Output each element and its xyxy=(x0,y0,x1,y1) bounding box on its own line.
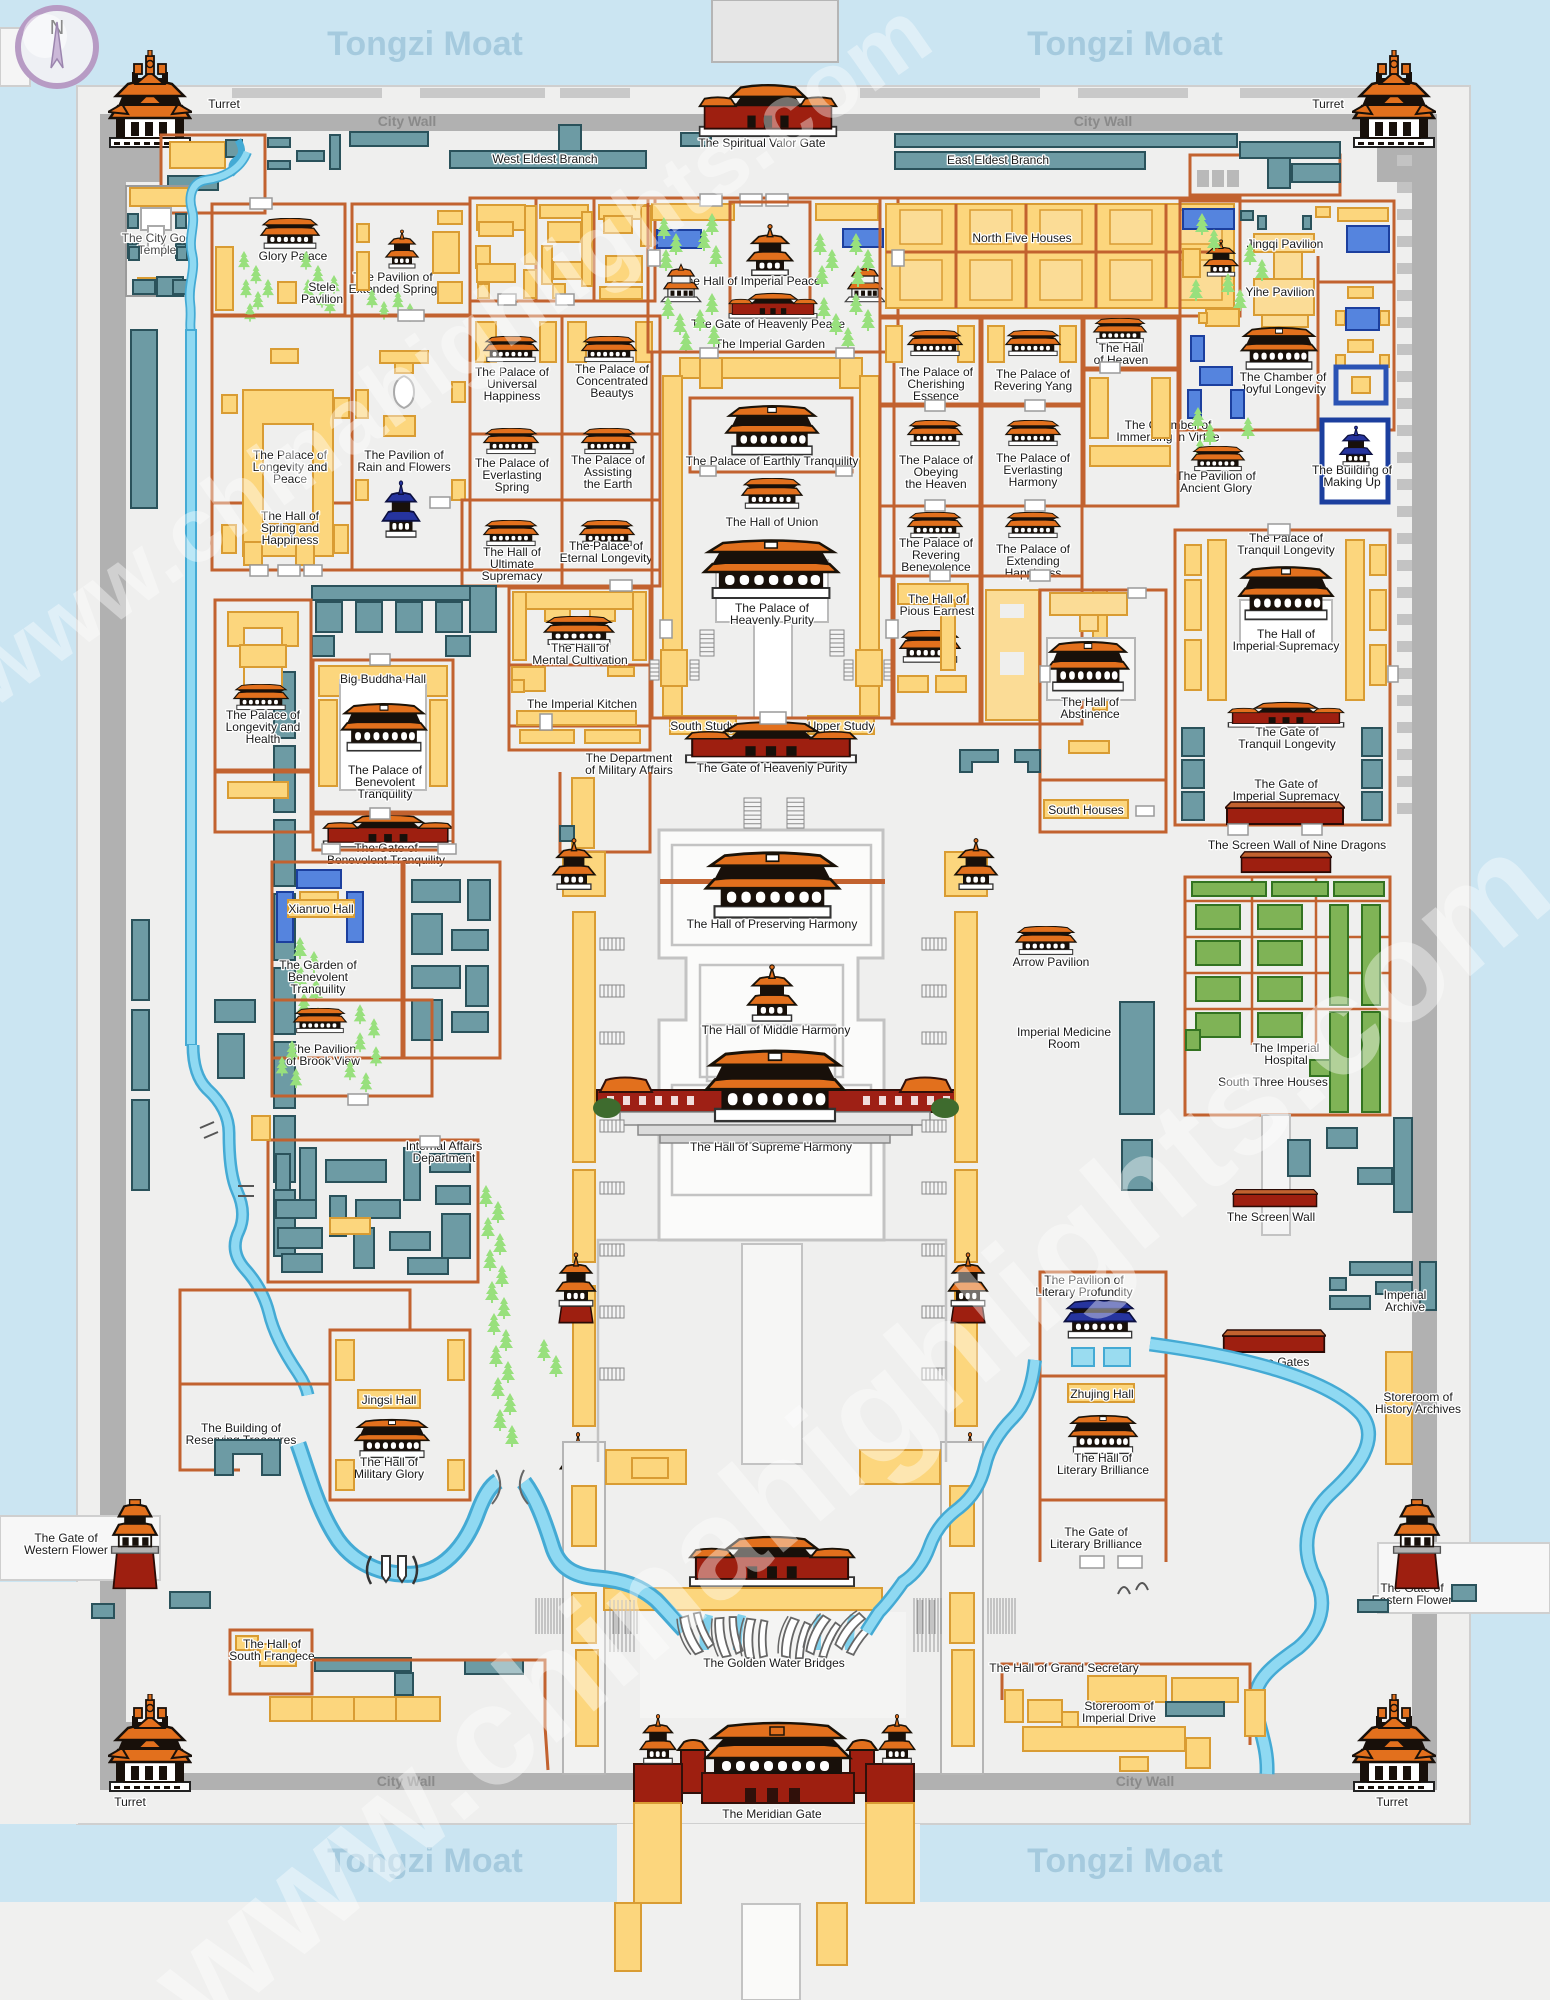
svg-text:Mental Cultivation: Mental Cultivation xyxy=(532,653,627,667)
svg-text:The Screen Wall of Nine Dragon: The Screen Wall of Nine Dragons xyxy=(1208,838,1386,852)
svg-text:Imperial Supremacy: Imperial Supremacy xyxy=(1233,789,1340,803)
svg-text:Eternal Longevity: Eternal Longevity xyxy=(560,551,653,565)
svg-text:the Earth: the Earth xyxy=(584,477,633,491)
svg-text:Spring: Spring xyxy=(495,480,530,494)
svg-text:Imperial Supremacy: Imperial Supremacy xyxy=(1233,639,1340,653)
svg-text:Zhujing Hall: Zhujing Hall xyxy=(1070,1387,1133,1401)
svg-text:City Wall: City Wall xyxy=(378,113,437,129)
svg-text:Tongzi Moat: Tongzi Moat xyxy=(1027,25,1223,63)
svg-text:Imperial Drive: Imperial Drive xyxy=(1082,1711,1156,1725)
svg-text:Pavilion: Pavilion xyxy=(301,292,343,306)
svg-text:Beautys: Beautys xyxy=(590,386,633,400)
svg-text:Temple: Temple xyxy=(138,243,177,257)
svg-text:Arrow Pavilion: Arrow Pavilion xyxy=(1013,955,1090,969)
svg-text:The Hall of Middle Harmony: The Hall of Middle Harmony xyxy=(702,1023,851,1037)
svg-text:Making Up: Making Up xyxy=(1323,475,1381,489)
svg-text:Room: Room xyxy=(1048,1037,1080,1051)
svg-text:The Screen Wall: The Screen Wall xyxy=(1227,1210,1315,1224)
svg-text:The Imperial Kitchen: The Imperial Kitchen xyxy=(527,697,637,711)
svg-text:Supremacy: Supremacy xyxy=(482,569,543,583)
svg-text:The Hall of Imperial Peace: The Hall of Imperial Peace xyxy=(679,274,821,288)
svg-text:The Hall of Supreme Harmony: The Hall of Supreme Harmony xyxy=(690,1140,852,1154)
svg-text:Tongzi Moat: Tongzi Moat xyxy=(1027,1842,1223,1880)
svg-text:Department: Department xyxy=(413,1151,476,1165)
svg-text:Tranquil Longevity: Tranquil Longevity xyxy=(1237,543,1335,557)
svg-text:East Eldest Branch: East Eldest Branch xyxy=(947,153,1049,167)
svg-text:Heavenly Purity: Heavenly Purity xyxy=(730,613,814,627)
svg-text:Tranquil Longevity: Tranquil Longevity xyxy=(1238,737,1336,751)
svg-text:Turret: Turret xyxy=(1312,97,1344,111)
svg-text:Turret: Turret xyxy=(1376,1795,1408,1809)
svg-text:The Hall of Grand Secretary: The Hall of Grand Secretary xyxy=(989,1661,1138,1675)
svg-text:Joyful Longevity: Joyful Longevity xyxy=(1240,382,1326,396)
svg-text:Western Flower: Western Flower xyxy=(24,1543,108,1557)
svg-text:Benevolent Tranquility: Benevolent Tranquility xyxy=(327,853,445,867)
svg-text:The Imperial Garden: The Imperial Garden xyxy=(715,337,825,351)
svg-text:Glory Palace: Glory Palace xyxy=(259,249,328,263)
svg-text:The Hall of Preserving Harmony: The Hall of Preserving Harmony xyxy=(687,917,858,931)
svg-text:City Wall: City Wall xyxy=(1074,113,1133,129)
svg-text:Yihe Pavilion: Yihe Pavilion xyxy=(1246,285,1315,299)
svg-text:Xianruo Hall: Xianruo Hall xyxy=(288,902,353,916)
svg-text:Abstinence: Abstinence xyxy=(1060,707,1120,721)
svg-text:History Archives: History Archives xyxy=(1375,1402,1461,1416)
svg-text:Turret: Turret xyxy=(114,1795,146,1809)
svg-text:Literary Brilliance: Literary Brilliance xyxy=(1050,1537,1142,1551)
svg-text:Tranquility: Tranquility xyxy=(358,787,413,801)
svg-text:South Houses: South Houses xyxy=(1048,803,1123,817)
svg-text:Tongzi Moat: Tongzi Moat xyxy=(327,25,523,63)
svg-text:South Frangece: South Frangece xyxy=(229,1649,315,1663)
svg-text:The Hall of Union: The Hall of Union xyxy=(726,515,819,529)
svg-text:Big Buddha Hall: Big Buddha Hall xyxy=(340,672,426,686)
svg-text:Pious Earnest: Pious Earnest xyxy=(900,604,975,618)
svg-text:Military Glory: Military Glory xyxy=(354,1467,424,1481)
svg-text:Jingsi Hall: Jingsi Hall xyxy=(362,1393,417,1407)
svg-text:The Gate of Heavenly Purity: The Gate of Heavenly Purity xyxy=(697,761,848,775)
svg-text:Ancient Glory: Ancient Glory xyxy=(1180,481,1252,495)
svg-text:the Heaven: the Heaven xyxy=(905,477,966,491)
svg-text:Revering Yang: Revering Yang xyxy=(994,379,1072,393)
svg-text:Tranquility: Tranquility xyxy=(291,982,346,996)
svg-text:Harmony: Harmony xyxy=(1009,475,1058,489)
svg-text:Archive: Archive xyxy=(1385,1300,1425,1314)
svg-text:West Eldest Branch: West Eldest Branch xyxy=(492,152,597,166)
svg-text:Literary Brilliance: Literary Brilliance xyxy=(1057,1463,1149,1477)
svg-text:The Golden Water Bridges: The Golden Water Bridges xyxy=(703,1656,845,1670)
svg-text:North Five Houses: North Five Houses xyxy=(972,231,1071,245)
svg-text:Jingqi Pavilion: Jingqi Pavilion xyxy=(1247,237,1324,251)
svg-text:Health: Health xyxy=(246,732,281,746)
svg-text:City Wall: City Wall xyxy=(1116,1773,1175,1789)
svg-text:Turret: Turret xyxy=(208,97,240,111)
svg-text:The Meridian Gate: The Meridian Gate xyxy=(722,1807,822,1821)
svg-text:of Military Affairs: of Military Affairs xyxy=(585,763,673,777)
svg-text:Happiness: Happiness xyxy=(484,389,541,403)
